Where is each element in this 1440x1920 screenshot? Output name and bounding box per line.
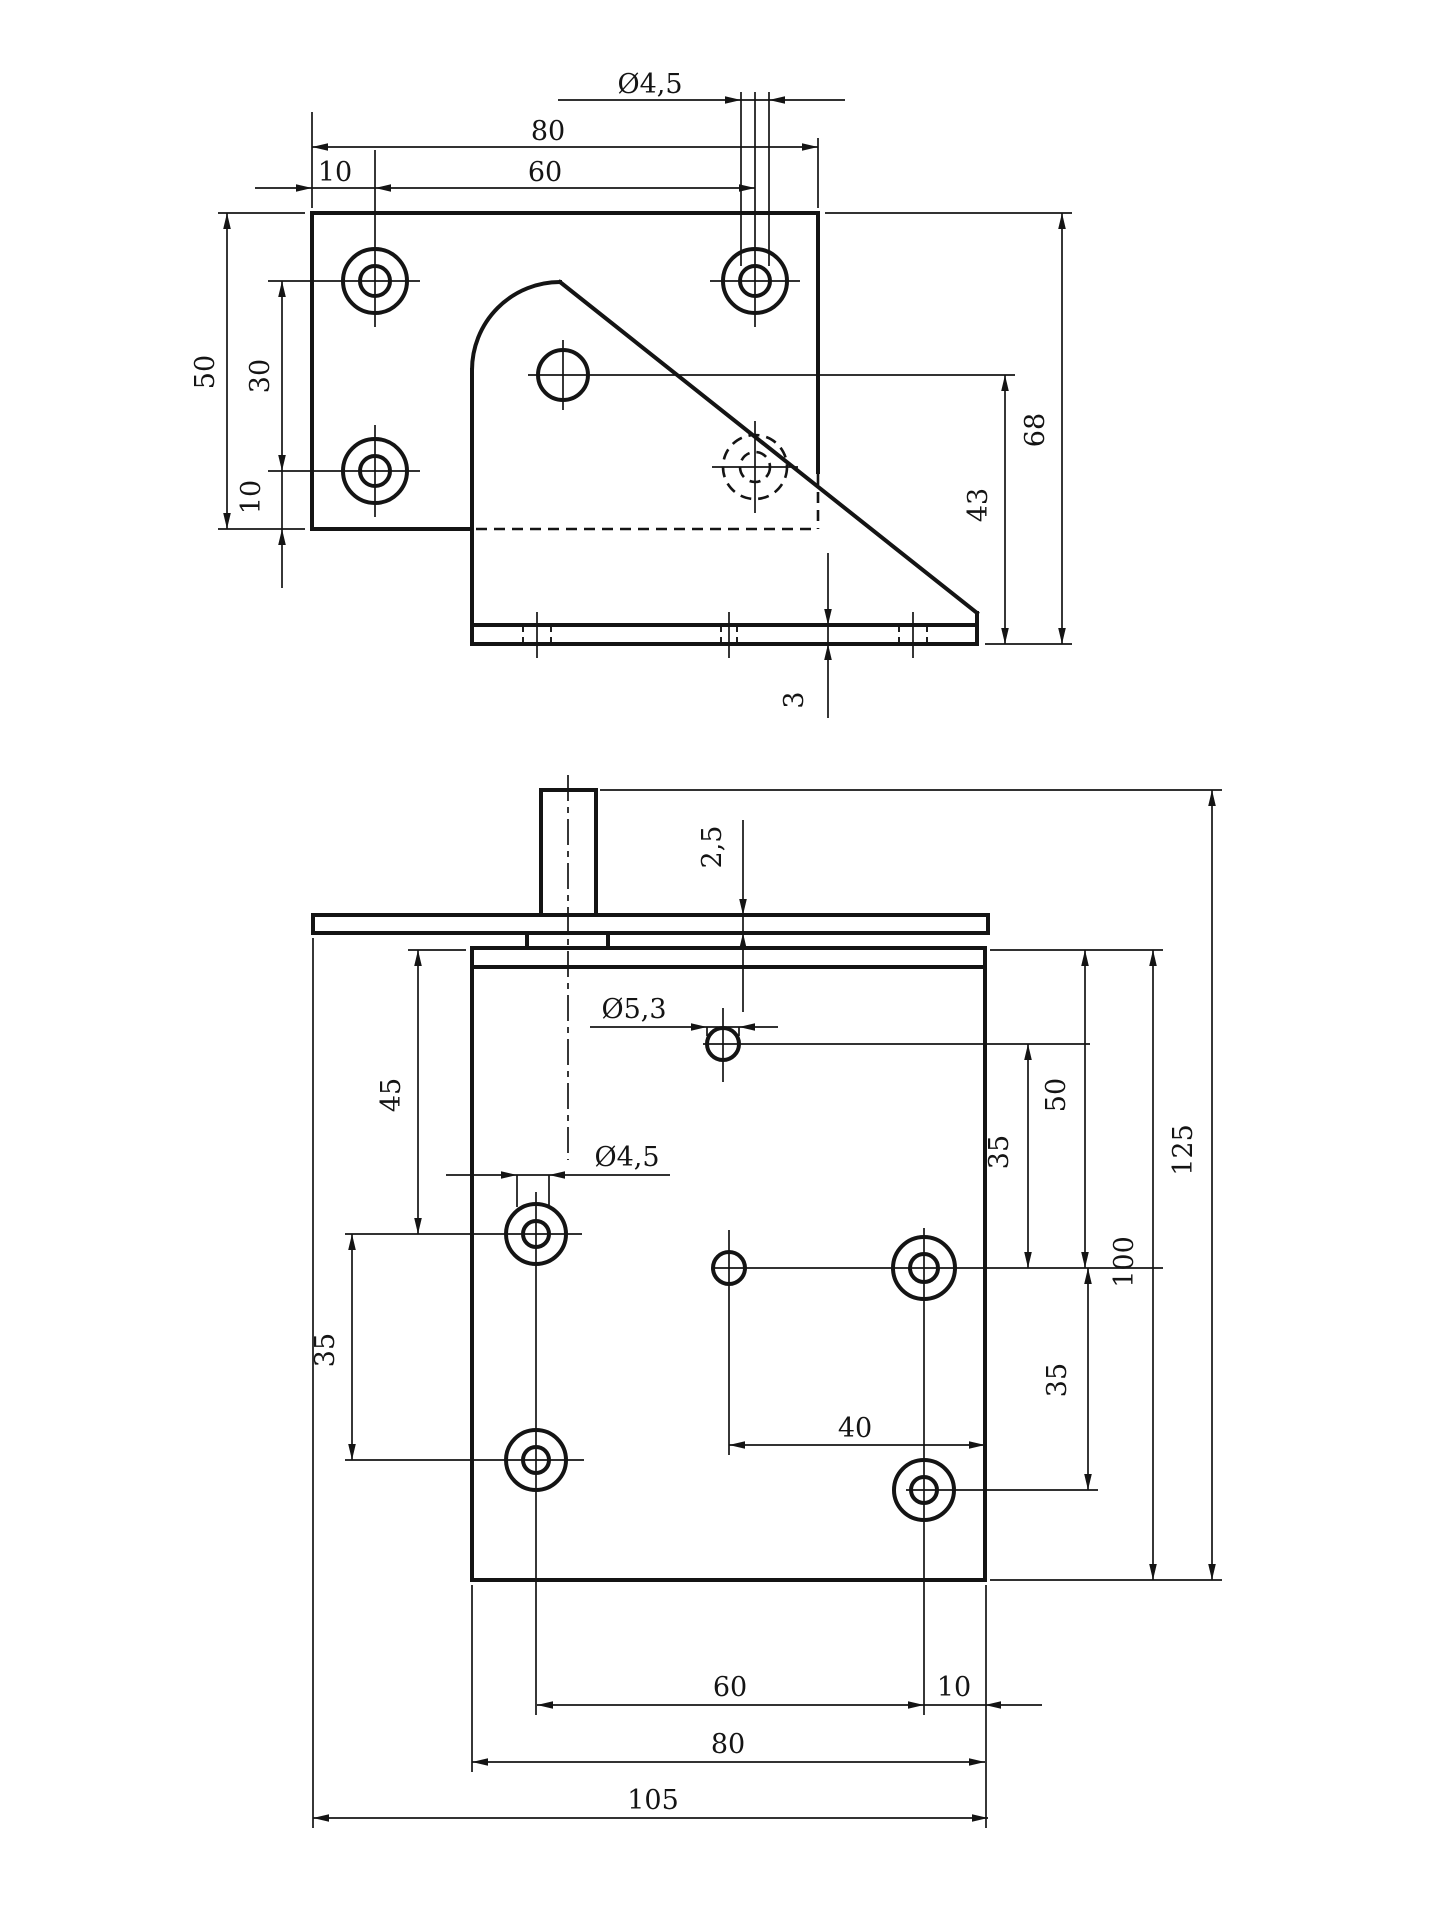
dim-label: Ø5,3 — [601, 994, 666, 1025]
dimension-arrowhead — [1024, 1044, 1032, 1060]
dim-label: 80 — [531, 116, 565, 147]
dim-label: 100 — [1109, 1236, 1140, 1288]
technical-drawing-canvas: 801060Ø4,5503010436832,5Ø5,3Ø4,545355035… — [0, 0, 1440, 1920]
dimension-arrowhead — [414, 1218, 422, 1234]
dim-label: 35 — [984, 1135, 1015, 1169]
dimension-arrowhead — [313, 1814, 329, 1822]
dim-label: 35 — [310, 1333, 341, 1367]
dim-label: Ø4,5 — [594, 1142, 659, 1173]
dimension-arrowhead — [375, 184, 391, 192]
dimension-arrowhead — [1058, 628, 1066, 644]
dimension-arrowhead — [824, 644, 832, 660]
dim-label: 2,5 — [697, 826, 728, 869]
dim-label: 105 — [627, 1785, 679, 1816]
dim-label: 60 — [713, 1672, 747, 1703]
dimension-arrowhead — [1001, 375, 1009, 391]
dimension-arrowhead — [969, 1441, 985, 1449]
dim-label: 45 — [376, 1078, 407, 1112]
part-outline-line — [560, 282, 977, 613]
dimension-arrowhead — [223, 513, 231, 529]
dimension-arrowhead — [1001, 628, 1009, 644]
dimension-arrowhead — [472, 1758, 488, 1766]
dimension-arrowhead — [1208, 790, 1216, 806]
dim-label: 10 — [937, 1672, 971, 1703]
dimension-arrowhead — [348, 1444, 356, 1460]
dimension-arrowhead — [549, 1171, 565, 1179]
dim-label: Ø4,5 — [617, 69, 682, 100]
dimension-arrowhead — [739, 184, 755, 192]
dimension-arrowhead — [769, 96, 785, 104]
dimension-arrowhead — [908, 1701, 924, 1709]
dimension-arrowhead — [501, 1171, 517, 1179]
dimension-arrowhead — [739, 1023, 755, 1031]
dim-label: 80 — [711, 1729, 745, 1760]
dim-label: 50 — [190, 355, 221, 389]
dim-label: 30 — [245, 359, 276, 393]
dimension-arrowhead — [802, 143, 818, 151]
dimension-arrowhead — [985, 1701, 1001, 1709]
dimension-arrowhead — [278, 529, 286, 545]
dimension-arrowhead — [1058, 213, 1066, 229]
dimension-arrowhead — [278, 281, 286, 297]
dimension-arrowhead — [278, 455, 286, 471]
dimension-arrowhead — [537, 1701, 553, 1709]
dim-label: 35 — [1042, 1363, 1073, 1397]
dim-label: 3 — [779, 691, 810, 708]
drawing-page: 801060Ø4,5503010436832,5Ø5,3Ø4,545355035… — [0, 0, 1440, 1920]
dimension-arrowhead — [824, 609, 832, 625]
dim-label: 50 — [1041, 1078, 1072, 1112]
dim-label: 40 — [838, 1413, 872, 1444]
dimension-arrowhead — [725, 96, 741, 104]
dimension-arrowhead — [1149, 950, 1157, 966]
dimension-arrowhead — [1208, 1564, 1216, 1580]
dimension-arrowhead — [1081, 950, 1089, 966]
dimension-arrowhead — [1084, 1268, 1092, 1284]
dimension-arrowhead — [691, 1023, 707, 1031]
dimension-arrowhead — [729, 1441, 745, 1449]
dimension-arrowhead — [969, 1758, 985, 1766]
dimension-arrowhead — [312, 143, 328, 151]
dimension-arrowhead — [739, 899, 747, 915]
dimension-arrowhead — [414, 950, 422, 966]
bracket-side-elevation: 801060Ø4,550301043683 — [190, 69, 1072, 718]
dim-label: 60 — [528, 157, 562, 188]
dimension-arrowhead — [296, 184, 312, 192]
dimension-arrowhead — [348, 1234, 356, 1250]
bracket-plan-view: 2,5Ø5,3Ø4,5453550351001253540601080105 — [310, 775, 1222, 1828]
dim-label: 10 — [318, 157, 352, 188]
dimension-arrowhead — [1081, 1252, 1089, 1268]
dim-label: 10 — [236, 480, 267, 514]
dimension-arrowhead — [739, 933, 747, 949]
dimension-arrowhead — [223, 213, 231, 229]
dimension-arrowhead — [1084, 1474, 1092, 1490]
dimension-arrowhead — [1149, 1564, 1157, 1580]
dimension-arrowhead — [1024, 1252, 1032, 1268]
dim-label: 125 — [1168, 1124, 1199, 1176]
dim-label: 43 — [963, 488, 994, 522]
dim-label: 68 — [1020, 413, 1051, 447]
